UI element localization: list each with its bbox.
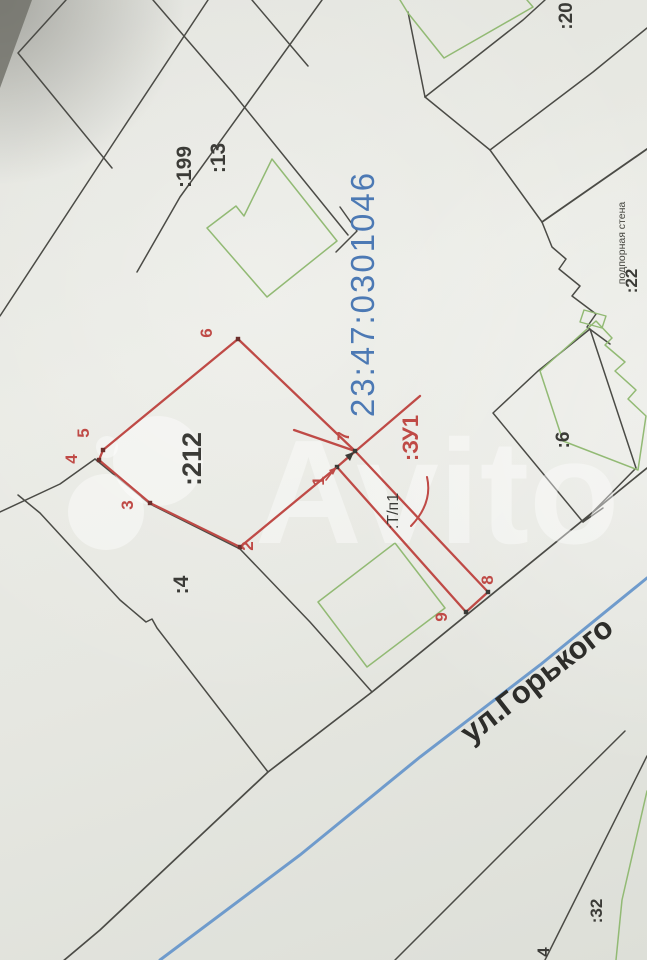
boundary-topright-b [425,0,545,97]
vertex-label-5: 5 [74,428,93,437]
parcel-label-4b: 4 [534,947,553,957]
photo-edge-layer [0,0,32,88]
avito-logo-circle-medium [68,474,144,550]
boundary-13-right [153,0,348,235]
vertex-label-7: 7 [334,431,353,440]
cadastral-map-photo: Avito :199:13:212:4:6:20:22подпорная сте… [0,0,647,960]
retaining-wall-label: подпорная стена [616,202,628,285]
vertex-dot-4 [97,458,101,462]
parcel-4-southeast [18,495,268,772]
vertex-label-2: 2 [238,541,257,550]
green-line-bottomright [616,791,647,960]
parcel-label-4: :4 [170,575,193,594]
vertex-dot-6 [236,337,240,341]
new-plot-label: :ЗУ1 [398,415,423,461]
road-edge-bottomright-a [395,731,625,960]
boundary-topright-e [490,150,542,222]
photo-dark-corner [0,0,32,88]
vertex-label-6: 6 [197,328,216,337]
parcel-label-20: :20 [556,2,577,29]
vertex-label-9: 9 [432,612,451,621]
parcel-label-32: :32 [587,899,606,924]
boundary-199-right [137,0,322,272]
boundary-topright-c [425,97,490,150]
cadastral-quarter-label: 23:47:0301046 [344,171,381,417]
vertex-label-1: 1 [309,476,328,485]
parcel-label-13: :13 [207,143,230,173]
boundary-top-short [252,0,308,66]
boundary-topright-d [490,28,647,150]
vertex-dot-3 [148,501,152,505]
vertex-label-3: 3 [118,500,137,509]
street-name-label: ул.Горького [453,609,619,750]
building-13-green [207,159,337,297]
parcel-label-212: :212 [177,432,207,486]
parcel-label-199: :199 [173,146,196,188]
vertex-dot-8 [486,590,490,594]
boundary-topleft-corner [18,0,112,168]
parcel-label-6: :6 [553,432,574,449]
retaining-wall-line [542,149,647,222]
building-top-green [400,0,533,58]
vertex-dot-5 [101,448,105,452]
vertex-label-8: 8 [478,575,497,584]
outbuilding-label: :Т/п1 [385,493,402,529]
cadastral-map-svg: Avito :199:13:212:4:6:20:22подпорная сте… [0,0,647,960]
vertex-dot-9 [464,610,468,614]
vertex-label-4: 4 [62,454,81,464]
